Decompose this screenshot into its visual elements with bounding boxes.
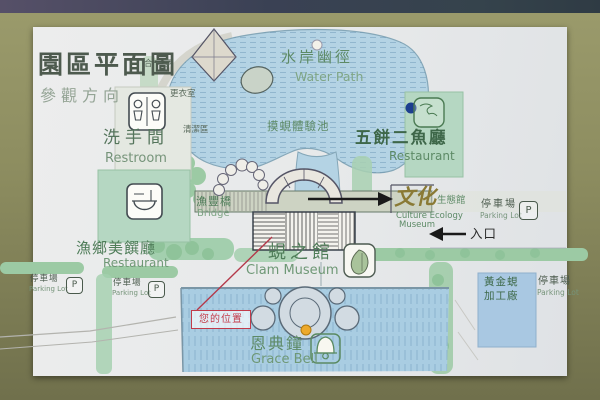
processing-plant-label-1: 黃金蜆 (484, 277, 519, 288)
culture-museum-label-zh: 生態館 (437, 196, 466, 206)
clam-museum-label-zh: 蜆之館 (268, 244, 334, 263)
cleaning-area-label: 清潔區 (183, 126, 209, 135)
clam-museum-label-en: Clam Museum (246, 264, 339, 278)
parking-glyph: P (72, 280, 77, 290)
local-restaurant-label-en: Restaurant (103, 257, 169, 270)
fish-restaurant-label-zh: 五餅二魚廳 (355, 129, 448, 146)
rice-bowl-icon (127, 184, 162, 219)
fish-restaurant-label-en: Restaurant (389, 150, 455, 163)
parking-icon: P (519, 201, 538, 220)
entrance-label: 入口 (470, 227, 497, 240)
unity-pavilion-label: 合一亭 (144, 60, 173, 69)
park-map-sign-photo: 園區平面圖 參觀方向 水岸幽徑 Water Path 合一亭 更衣室 清潔區 洗… (0, 0, 600, 400)
parking-bl1-label-en: Parking Lot (29, 286, 68, 293)
processing-plant-label-2: 加工廠 (484, 291, 519, 302)
restroom-label-en: Restroom (105, 152, 167, 166)
clam-touch-pool-label: 摸蜆體驗池 (267, 120, 330, 132)
parking-br-label-zh: 停車場 (538, 277, 571, 288)
restroom-figures-icon (129, 93, 165, 130)
parking-right-label-en: Parking Lot (480, 212, 522, 220)
parking-icon: P (148, 281, 165, 298)
culture-museum-calligraphy: 文化 (394, 185, 437, 208)
changing-room-label: 更衣室 (170, 90, 196, 99)
parking-br-label-en: Parking Lot (537, 289, 579, 297)
grace-bell-label-zh: 恩典鐘 (250, 336, 304, 353)
parking-icon: P (66, 277, 83, 294)
restroom-label-zh: 洗手間 (103, 130, 169, 148)
parking-glyph: P (525, 205, 531, 216)
bridge-label-zh: 漁豐橋 (196, 196, 232, 208)
parking-right-label-zh: 停車場 (481, 200, 517, 211)
grace-bell-label-en: Grace Bell (251, 353, 318, 367)
parking-bl2-label-en: Parking Lot (112, 290, 151, 297)
you-are-here-box: 您的位置 (191, 310, 251, 329)
clam-shell-icon (344, 244, 375, 277)
water-path-label-en: Water Path (295, 70, 363, 83)
bridge-label-en: Bridge (197, 209, 230, 220)
local-restaurant-label-zh: 漁鄉美饌廳 (76, 241, 156, 257)
map-subtitle: 參觀方向 (40, 88, 124, 105)
water-path-label-zh: 水岸幽徑 (281, 50, 353, 66)
parking-glyph: P (154, 284, 159, 294)
parking-bl1-label-zh: 停車場 (30, 275, 59, 284)
culture-museum-label-en2: Museum (399, 221, 435, 230)
parking-bl2-label-zh: 停車場 (113, 279, 142, 288)
restaurant-seal-icon (414, 98, 444, 127)
